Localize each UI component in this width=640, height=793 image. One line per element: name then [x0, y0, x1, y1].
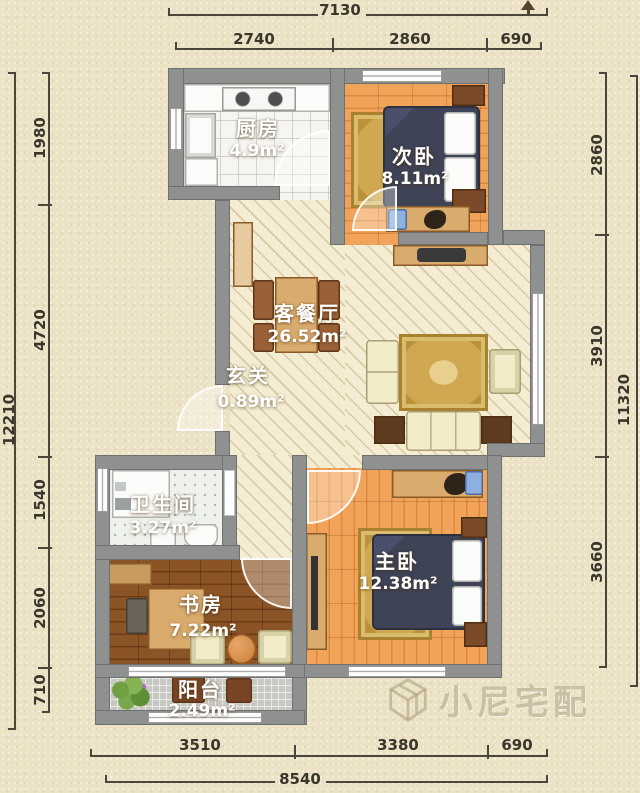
master-bedroom-label: 主卧	[375, 546, 419, 575]
dim-tick	[595, 234, 609, 236]
kitchen-sink	[185, 113, 216, 158]
dim-line	[90, 749, 548, 757]
living-rug	[399, 334, 488, 411]
entry-door-arc	[177, 385, 223, 431]
window	[362, 70, 442, 82]
dim-tick	[595, 456, 609, 458]
wall	[215, 200, 230, 385]
stove	[222, 87, 296, 111]
dim-right-seg-3: 3660	[588, 541, 606, 583]
study-label: 书房	[179, 589, 223, 618]
pillow	[452, 540, 482, 582]
dim-bottom-seg-1: 3510	[179, 736, 221, 754]
floorplan-canvas: 厨房 4.9m² 次卧 8.11m² 客餐厅 26.52m² 玄关 0.89m²…	[0, 0, 640, 793]
entrance-area: 0.89m²	[217, 392, 284, 412]
wall	[330, 68, 345, 245]
dim-tick	[38, 456, 52, 458]
armchair	[489, 349, 521, 394]
side-table	[374, 416, 405, 444]
bathroom-door	[224, 470, 235, 516]
dining-chair	[253, 280, 274, 320]
second-bedroom-area: 8.11m²	[381, 169, 448, 189]
wall	[398, 232, 488, 245]
study-chair	[126, 598, 148, 634]
dim-bottom-total: 8540	[279, 770, 321, 788]
window	[97, 468, 108, 512]
master-bedroom-area: 12.38m²	[359, 574, 438, 594]
watermark-logo-icon	[385, 677, 431, 723]
dim-tick	[487, 745, 489, 759]
bathroom-label: 卫生间	[130, 489, 196, 518]
nightstand	[461, 517, 487, 538]
dim-left-seg-1: 1980	[31, 117, 49, 159]
wall	[503, 230, 545, 245]
wall	[215, 431, 230, 457]
pillow	[444, 112, 476, 155]
wall	[488, 68, 503, 245]
bookshelf	[108, 563, 152, 585]
potted-plant	[110, 676, 152, 711]
three-seat-sofa	[406, 411, 481, 451]
dim-left-seg-5: 710	[31, 674, 49, 705]
dim-right-total: 11320	[615, 374, 633, 426]
study-armchair	[258, 630, 292, 664]
north-arrow-stem	[527, 9, 530, 15]
loveseat-sofa	[366, 340, 399, 404]
bathroom-area: 3.27m²	[129, 518, 196, 538]
wall	[487, 455, 502, 678]
pillow	[452, 586, 482, 626]
dim-bottom-seg-2: 3380	[377, 736, 419, 754]
dim-left-seg-2: 4720	[31, 309, 49, 351]
watermark: 小尼宅配	[385, 675, 591, 724]
wall	[362, 455, 502, 470]
watermark-text: 小尼宅配	[439, 675, 591, 724]
dim-line	[326, 775, 548, 783]
dim-tick	[38, 204, 52, 206]
wall	[168, 186, 280, 200]
hall-cabinet	[233, 222, 253, 287]
hallway-floor	[237, 455, 292, 560]
side-table	[481, 416, 512, 444]
dim-bottom-seg-3: 690	[501, 736, 532, 754]
nightstand	[464, 622, 487, 647]
second-bedroom-label: 次卧	[392, 141, 436, 170]
dim-left-seg-4: 2060	[31, 587, 49, 629]
dim-tick	[332, 38, 334, 52]
dim-top-seg-1: 2740	[233, 30, 275, 48]
wall	[292, 455, 307, 725]
entrance-label: 玄关	[226, 360, 270, 389]
dim-tick	[38, 667, 52, 669]
dim-tick	[486, 38, 488, 52]
dim-left-total: 12210	[0, 394, 18, 446]
wall	[95, 455, 237, 470]
dim-top-total: 7130	[319, 1, 361, 19]
dim-tick	[294, 745, 296, 759]
dim-line	[105, 775, 275, 783]
desk-chair	[465, 471, 483, 495]
living-dining-label: 客餐厅	[274, 298, 340, 327]
balcony-label: 阳台	[178, 674, 222, 703]
wall	[95, 545, 240, 560]
kitchen-area: 4.9m²	[229, 141, 284, 161]
nightstand	[452, 85, 485, 106]
dim-tick	[38, 547, 52, 549]
dim-line	[168, 8, 318, 16]
window	[348, 666, 446, 677]
tv	[417, 248, 466, 262]
refrigerator	[185, 158, 218, 186]
window	[170, 108, 182, 150]
dim-left-seg-3: 1540	[31, 479, 49, 521]
window	[532, 293, 544, 425]
living-dining-area: 26.52m²	[268, 327, 347, 347]
dim-right-seg-2: 3910	[588, 325, 606, 367]
kitchen-label: 厨房	[236, 113, 280, 142]
balcony-area: 2.49m²	[168, 701, 235, 721]
dim-top-seg-2: 2860	[389, 30, 431, 48]
balcony-chair	[226, 678, 252, 703]
dim-top-seg-3: 690	[500, 30, 531, 48]
wall-tv	[311, 556, 318, 630]
dim-right-seg-1: 2860	[588, 134, 606, 176]
study-area: 7.22m²	[169, 621, 236, 641]
